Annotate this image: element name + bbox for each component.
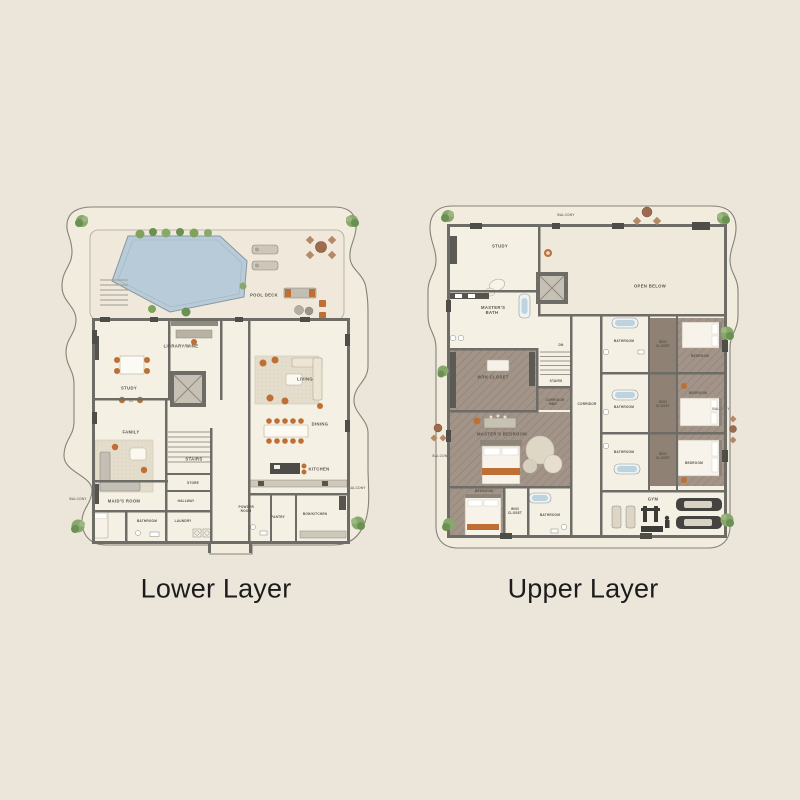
lower-layer-caption: Lower Layer — [141, 574, 292, 605]
upper-plan-graphic — [425, 198, 745, 568]
upper-floor-plan: BALCONY STUDY MASTER'S BATH OPEN BELOW W… — [0, 0, 800, 800]
elevator-icon-upper — [536, 272, 568, 304]
bedroom4-furniture — [465, 494, 501, 536]
upper-layer-caption: Upper Layer — [508, 574, 659, 605]
floorplan-canvas: POOL DECK BALCONY BALCONY STUDY LIBRARY/… — [0, 0, 800, 800]
wing-beds — [678, 322, 722, 483]
